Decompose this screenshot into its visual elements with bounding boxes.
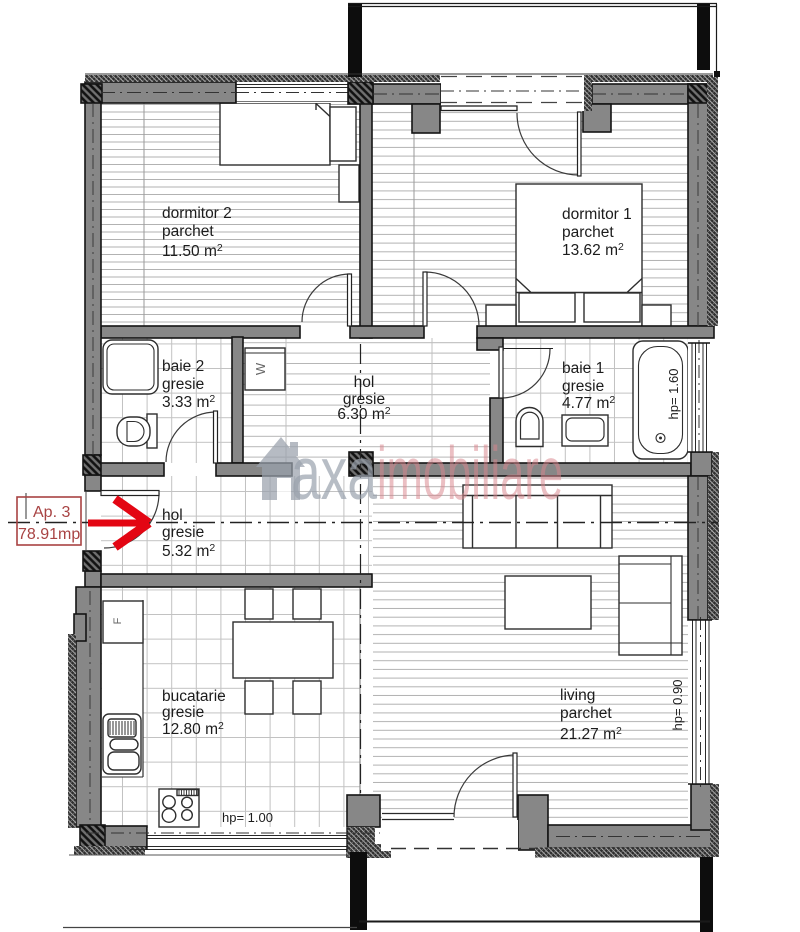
svg-text:hp= 1.00: hp= 1.00 <box>222 810 273 825</box>
svg-text:21.27 m2: 21.27 m2 <box>560 725 622 743</box>
svg-text:bucatarie: bucatarie <box>162 688 226 705</box>
svg-text:3.33 m2: 3.33 m2 <box>162 393 215 411</box>
svg-text:baie 1: baie 1 <box>562 360 604 377</box>
svg-text:baie 2: baie 2 <box>162 358 204 375</box>
svg-text:Ap. 3: Ap. 3 <box>33 504 70 521</box>
svg-text:gresie: gresie <box>162 524 204 541</box>
svg-text:11.50 m2: 11.50 m2 <box>162 242 223 260</box>
svg-text:5.32 m2: 5.32 m2 <box>162 542 215 560</box>
svg-text:gresie: gresie <box>562 378 604 395</box>
svg-text:parchet: parchet <box>562 224 614 241</box>
svg-text:parchet: parchet <box>560 705 612 722</box>
svg-text:hp= 0.90: hp= 0.90 <box>670 680 685 731</box>
svg-text:gresie: gresie <box>162 376 204 393</box>
svg-text:axa: axa <box>291 431 377 515</box>
svg-text:dormitor 2: dormitor 2 <box>162 205 232 222</box>
svg-text:gresie: gresie <box>162 704 204 721</box>
svg-text:parchet: parchet <box>162 223 214 240</box>
svg-text:W: W <box>253 362 268 375</box>
svg-text:hol: hol <box>354 374 375 391</box>
svg-text:dormitor 1: dormitor 1 <box>562 206 632 223</box>
svg-text:6.30 m2: 6.30 m2 <box>337 405 390 423</box>
svg-text:78.91mp: 78.91mp <box>18 526 80 543</box>
svg-text:hp= 1.60: hp= 1.60 <box>666 369 681 420</box>
svg-text:F: F <box>112 617 124 624</box>
svg-text:hol: hol <box>162 507 183 524</box>
svg-text:13.62 m2: 13.62 m2 <box>562 241 624 259</box>
svg-text:imobiliare: imobiliare <box>377 431 563 515</box>
svg-text:12.80 m2: 12.80 m2 <box>162 720 224 738</box>
svg-text:4.77 m2: 4.77 m2 <box>562 394 615 412</box>
svg-text:living: living <box>560 687 595 704</box>
